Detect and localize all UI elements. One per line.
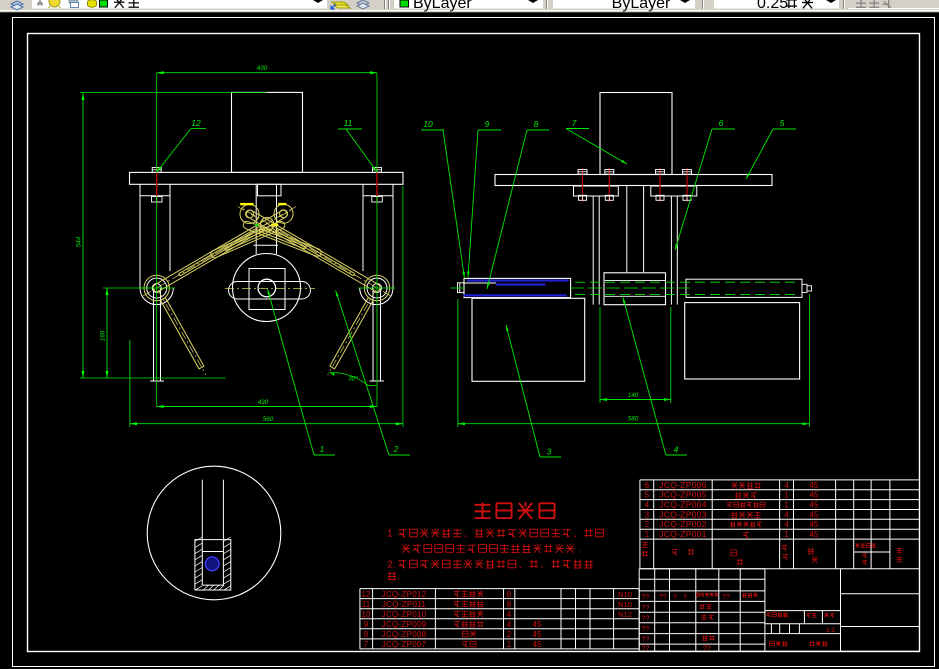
svg-text:??: ?? (642, 626, 650, 633)
svg-text:1: 1 (645, 530, 650, 539)
svg-text:1: 1 (784, 501, 789, 510)
svg-text:5: 5 (645, 491, 650, 500)
svg-text:430: 430 (258, 399, 269, 406)
svg-text:544: 544 (76, 236, 83, 247)
svg-text:8: 8 (534, 119, 539, 129)
svg-text:11: 11 (344, 118, 353, 128)
svg-text:8: 8 (364, 630, 369, 639)
svg-text:N10: N10 (618, 600, 632, 609)
svg-text:12: 12 (362, 590, 371, 599)
svg-text:45: 45 (533, 630, 542, 639)
svg-text:N12: N12 (618, 610, 632, 619)
svg-text:8: 8 (507, 590, 512, 599)
svg-text:430: 430 (257, 65, 268, 72)
svg-text:3: 3 (547, 447, 552, 457)
svg-text:JCQ-ZP001: JCQ-ZP001 (659, 529, 707, 539)
svg-text:2: 2 (507, 630, 512, 639)
svg-text:7: 7 (364, 640, 369, 649)
svg-text:JCQ-ZP007: JCQ-ZP007 (382, 640, 427, 649)
svg-text:6: 6 (719, 118, 724, 128)
svg-text:12: 12 (191, 118, 201, 128)
svg-text:1: 1 (507, 640, 512, 649)
svg-text:45: 45 (810, 530, 819, 539)
svg-text:JCQ-ZP005: JCQ-ZP005 (659, 490, 707, 500)
svg-text:??: ?? (642, 646, 650, 653)
svg-text:JCQ-ZP012: JCQ-ZP012 (382, 590, 427, 599)
svg-text:10: 10 (423, 119, 433, 129)
svg-text:11: 11 (362, 600, 371, 609)
svg-text:JCQ-ZP003: JCQ-ZP003 (659, 509, 707, 519)
svg-text:??: ?? (642, 616, 650, 623)
svg-text:??: ?? (722, 594, 730, 601)
svg-text:30°: 30° (348, 375, 358, 383)
svg-text:??: ?? (642, 637, 650, 644)
svg-text:1: 1 (784, 491, 789, 500)
svg-text:45: 45 (810, 510, 819, 519)
svg-text:4: 4 (507, 620, 512, 629)
svg-text:??: ?? (642, 605, 650, 612)
svg-text:45: 45 (810, 501, 819, 510)
svg-text:1.: 1. (387, 529, 395, 540)
svg-text:JCQ-ZP002: JCQ-ZP002 (659, 519, 707, 529)
svg-text:??: ?? (659, 594, 667, 601)
svg-text:??: ?? (703, 646, 711, 653)
svg-text:??: ?? (642, 594, 650, 601)
svg-text:2.: 2. (387, 560, 395, 571)
svg-text:45: 45 (533, 640, 542, 649)
svg-text:45: 45 (810, 491, 819, 500)
svg-text:JCQ-ZP006: JCQ-ZP006 (659, 480, 707, 490)
svg-text:6: 6 (645, 481, 650, 490)
svg-text:45: 45 (810, 520, 819, 529)
svg-text:5: 5 (780, 118, 785, 128)
svg-text:8: 8 (507, 600, 512, 609)
svg-text:560: 560 (263, 416, 274, 423)
svg-text:4: 4 (784, 510, 789, 519)
svg-text:JCQ-ZP011: JCQ-ZP011 (382, 600, 427, 609)
svg-text:?: ? (673, 594, 677, 601)
svg-text:160: 160 (100, 330, 107, 341)
svg-text:3: 3 (645, 510, 650, 519)
svg-text:1: 1 (320, 444, 325, 454)
svg-text:2: 2 (645, 520, 650, 529)
svg-text:2: 2 (393, 444, 399, 454)
svg-text:1: 1 (784, 530, 789, 539)
svg-text:4: 4 (784, 520, 789, 529)
svg-text:4: 4 (784, 481, 789, 490)
svg-text:0.25: 0.25 (757, 0, 788, 12)
svg-text:N10: N10 (618, 590, 632, 599)
svg-text:45: 45 (810, 481, 819, 490)
svg-text:45: 45 (533, 620, 542, 629)
svg-text:.: . (578, 545, 581, 556)
svg-text:JCQ-ZP004: JCQ-ZP004 (659, 500, 707, 510)
svg-text:140: 140 (628, 392, 639, 399)
svg-text:7: 7 (572, 118, 577, 128)
svg-text:10: 10 (362, 610, 371, 619)
svg-text:9: 9 (485, 119, 490, 129)
svg-text:JCQ-ZP009: JCQ-ZP009 (382, 620, 427, 629)
svg-text:.: . (397, 572, 400, 583)
svg-text:580: 580 (628, 416, 639, 423)
svg-text:4: 4 (645, 501, 650, 510)
svg-text:?: ? (683, 594, 687, 601)
svg-text:ByLayer: ByLayer (413, 0, 472, 12)
svg-text:1:3: 1:3 (826, 627, 835, 634)
svg-text:9: 9 (364, 620, 369, 629)
svg-text:4: 4 (674, 445, 679, 455)
svg-text:4: 4 (507, 610, 512, 619)
svg-text:JCQ-ZP008: JCQ-ZP008 (382, 630, 427, 639)
svg-text:ByLayer: ByLayer (612, 0, 671, 12)
svg-text:JCQ-ZP010: JCQ-ZP010 (382, 610, 427, 619)
